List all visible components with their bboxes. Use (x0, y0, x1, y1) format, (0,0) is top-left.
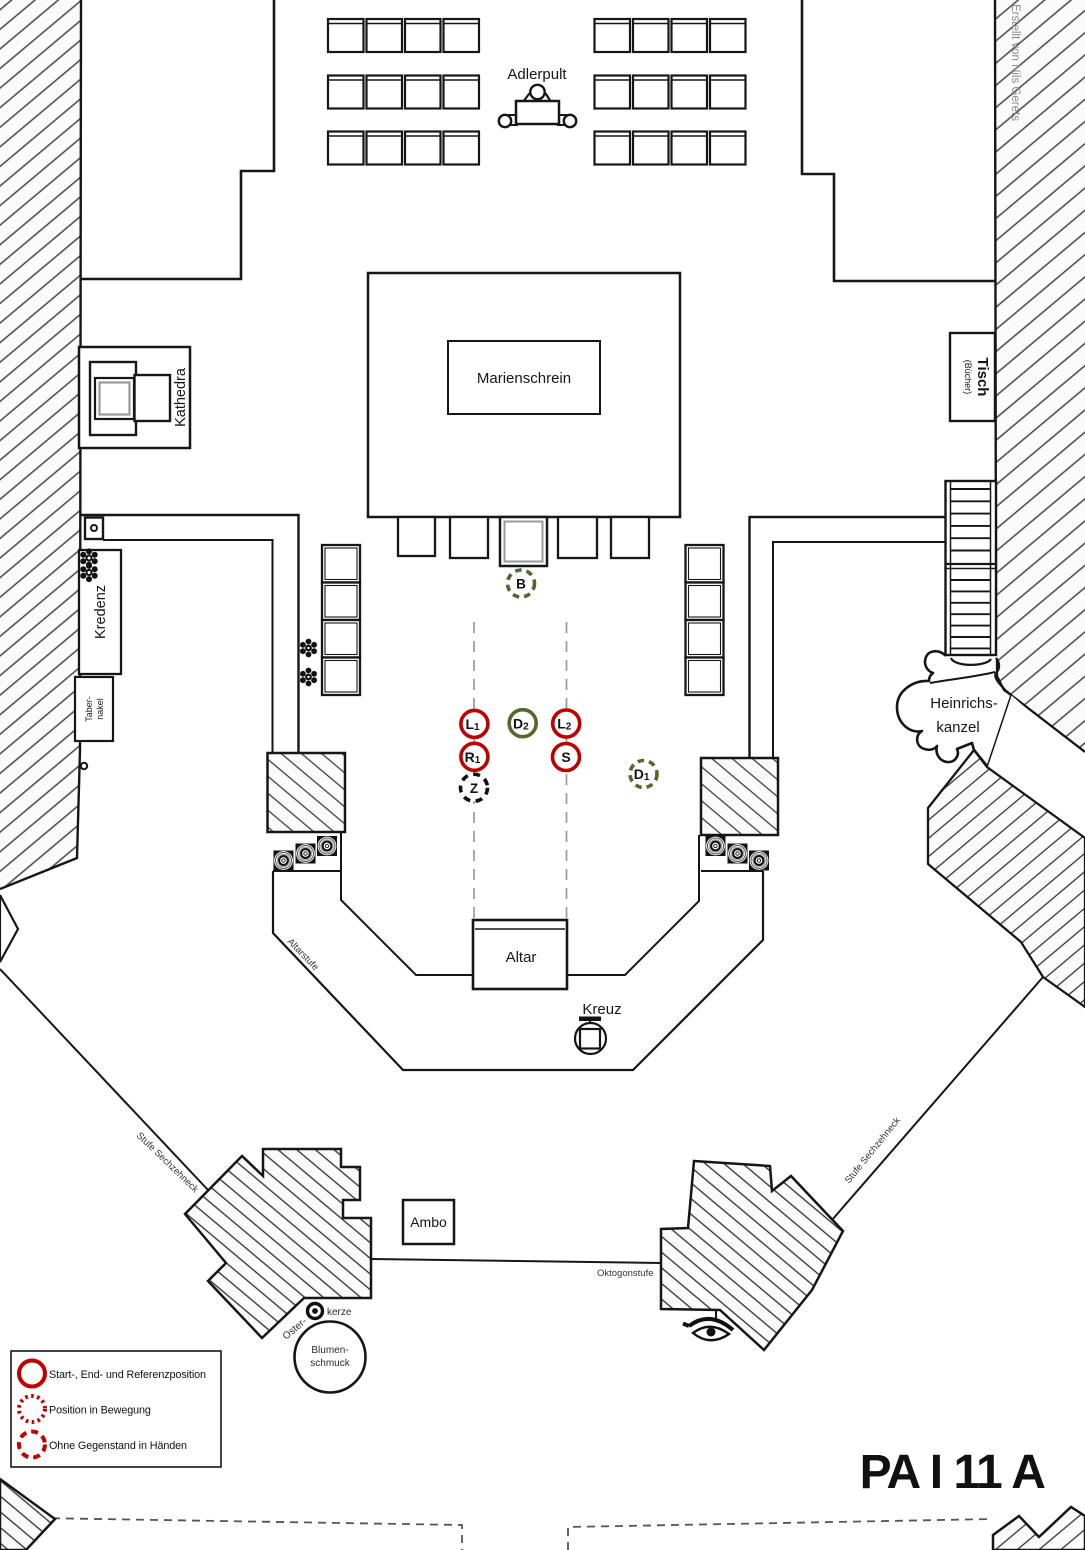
svg-text:Ambo: Ambo (410, 1214, 447, 1230)
svg-text:schmuck: schmuck (310, 1358, 350, 1369)
svg-text:Z: Z (470, 781, 478, 796)
svg-text:B: B (516, 577, 526, 592)
svg-text:Position in Bewegung: Position in Bewegung (49, 1405, 151, 1417)
svg-text:Adlerpult: Adlerpult (507, 66, 567, 83)
svg-text:Start-, End- und Referenzposit: Start-, End- und Referenzposition (49, 1369, 206, 1381)
svg-text:Tisch: Tisch (974, 358, 991, 397)
svg-text:Altar: Altar (506, 949, 537, 966)
svg-text:PA I 11 A: PA I 11 A (860, 1446, 1046, 1499)
svg-text:Taber-: Taber- (84, 696, 94, 722)
svg-text:Heinrichs-: Heinrichs- (930, 695, 998, 712)
svg-text:Blumen-: Blumen- (311, 1345, 348, 1356)
svg-text:Erstellt von Nils Gerets: Erstellt von Nils Gerets (1009, 4, 1021, 121)
svg-text:kanzel: kanzel (936, 719, 979, 736)
svg-text:Kredenz: Kredenz (93, 585, 109, 639)
svg-text:nakel: nakel (95, 698, 105, 720)
svg-text:S: S (561, 749, 570, 765)
svg-text:(Bücher): (Bücher) (963, 360, 973, 395)
svg-text:Ohne Gegenstand in Händen: Ohne Gegenstand in Händen (49, 1440, 187, 1452)
svg-text:Kreuz: Kreuz (582, 1001, 621, 1018)
svg-text:Oktogonstufe: Oktogonstufe (597, 1268, 654, 1279)
svg-text:Kathedra: Kathedra (173, 367, 189, 427)
svg-text:kerze: kerze (327, 1307, 352, 1318)
svg-text:Marienschrein: Marienschrein (477, 370, 571, 387)
